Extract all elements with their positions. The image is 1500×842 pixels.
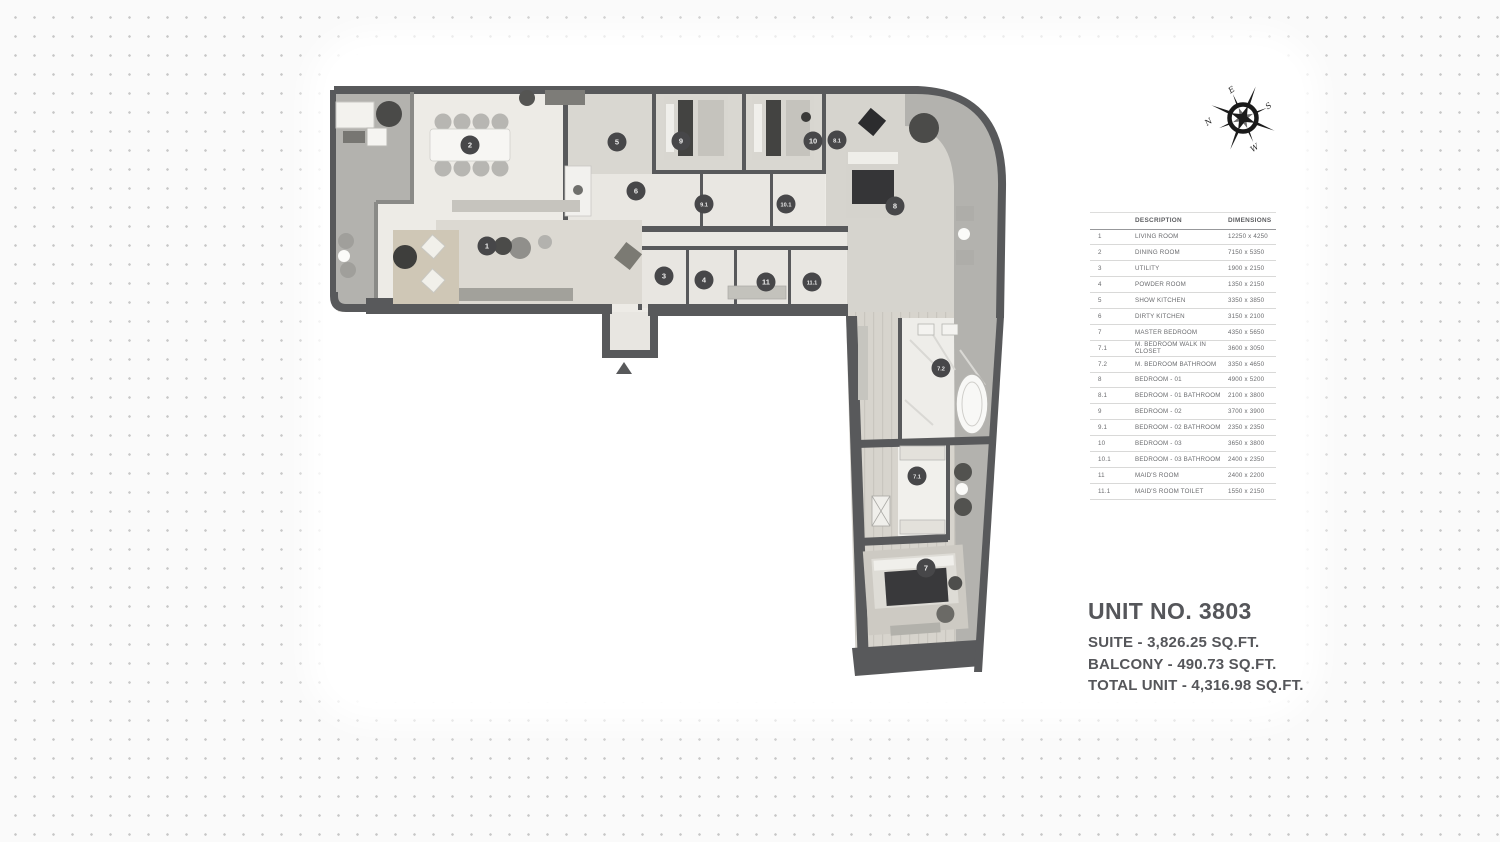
room-marker: 8.1	[828, 131, 847, 150]
room-marker: 4	[695, 271, 714, 290]
page: { "compass": { "north": "N", "east": "E"…	[0, 0, 1500, 842]
schedule-cell-dimensions: 3700 x 3900	[1228, 408, 1276, 415]
schedule-cell-dimensions: 3650 x 3800	[1228, 440, 1276, 447]
room-marker-label: 2	[468, 141, 472, 150]
room-marker: 8	[886, 197, 905, 216]
schedule-cell-dimensions: 2400 x 2200	[1228, 472, 1276, 479]
floor-plan: 12345677.17.288.199.11010.11111.1	[325, 78, 1025, 690]
room-marker-label: 7.1	[913, 475, 921, 481]
schedule-cell-description: LIVING ROOM	[1135, 233, 1228, 240]
schedule-header-dimensions: DIMENSIONS	[1228, 217, 1276, 224]
schedule-cell-description: BEDROOM - 02 BATHROOM	[1135, 424, 1228, 431]
room-marker-label: 7.2	[937, 367, 945, 373]
schedule-header-description: DESCRIPTION	[1135, 217, 1228, 224]
schedule-cell-no: 11.1	[1090, 488, 1135, 495]
schedule-cell-no: 3	[1090, 265, 1135, 272]
schedule-row: 11MAID'S ROOM2400 x 2200	[1090, 468, 1276, 484]
room-marker-label: 9.1	[700, 203, 708, 209]
room-marker: 1	[478, 237, 497, 256]
schedule-row: 1LIVING ROOM12250 x 4250	[1090, 230, 1276, 246]
schedule-cell-description: DIRTY KITCHEN	[1135, 313, 1228, 320]
compass-west-label: W	[1249, 141, 1262, 154]
schedule-cell-description: POWDER ROOM	[1135, 281, 1228, 288]
unit-number-title: UNIT NO. 3803	[1088, 598, 1304, 625]
balcony-area-text: BALCONY - 490.73 SQ.FT.	[1088, 654, 1304, 676]
schedule-cell-dimensions: 1550 x 2150	[1228, 488, 1276, 495]
schedule-row: 3UTILITY1900 x 2150	[1090, 261, 1276, 277]
schedule-cell-no: 5	[1090, 297, 1135, 304]
schedule-cell-dimensions: 3150 x 2100	[1228, 313, 1276, 320]
schedule-cell-dimensions: 2350 x 2350	[1228, 424, 1276, 431]
entrance-arrow	[616, 362, 632, 374]
schedule-row: 7.2M. BEDROOM BATHROOM3350 x 4650	[1090, 357, 1276, 373]
schedule-row: 4POWDER ROOM1350 x 2150	[1090, 277, 1276, 293]
schedule-cell-dimensions: 3600 x 3050	[1228, 345, 1276, 352]
compass-south-label: S	[1264, 100, 1274, 111]
schedule-cell-description: BEDROOM - 03 BATHROOM	[1135, 456, 1228, 463]
schedule-cell-description: MASTER BEDROOM	[1135, 329, 1228, 336]
room-marker: 9.1	[695, 195, 714, 214]
schedule-row: 10.1BEDROOM - 03 BATHROOM2400 x 2350	[1090, 452, 1276, 468]
room-marker-label: 10.1	[781, 203, 792, 209]
schedule-row: 2DINING ROOM7150 x 5350	[1090, 245, 1276, 261]
schedule-row: 6DIRTY KITCHEN3150 x 2100	[1090, 309, 1276, 325]
total-area-text: TOTAL UNIT - 4,316.98 SQ.FT.	[1088, 675, 1304, 697]
schedule-cell-description: SHOW KITCHEN	[1135, 297, 1228, 304]
room-marker-label: 11.1	[807, 281, 818, 287]
room-marker-label: 10	[809, 137, 817, 146]
schedule-cell-description: BEDROOM - 01 BATHROOM	[1135, 392, 1228, 399]
schedule-cell-no: 2	[1090, 249, 1135, 256]
room-marker: 11	[757, 273, 776, 292]
schedule-cell-no: 7.2	[1090, 361, 1135, 368]
schedule-body: 1LIVING ROOM12250 x 42502DINING ROOM7150…	[1090, 230, 1276, 500]
unit-info-block: UNIT NO. 3803 SUITE - 3,826.25 SQ.FT. BA…	[1088, 598, 1304, 697]
schedule-cell-dimensions: 1900 x 2150	[1228, 265, 1276, 272]
schedule-cell-no: 9.1	[1090, 424, 1135, 431]
schedule-cell-description: DINING ROOM	[1135, 249, 1228, 256]
room-marker: 3	[655, 267, 674, 286]
room-marker: 11.1	[803, 273, 822, 292]
schedule-row: 8BEDROOM - 014900 x 5200	[1090, 373, 1276, 389]
schedule-cell-dimensions: 3350 x 3850	[1228, 297, 1276, 304]
room-marker: 7.1	[908, 467, 927, 486]
schedule-row: 10BEDROOM - 033650 x 3800	[1090, 436, 1276, 452]
room-marker-label: 7	[924, 564, 928, 573]
schedule-cell-no: 7.1	[1090, 345, 1135, 352]
schedule-cell-dimensions: 3350 x 4650	[1228, 361, 1276, 368]
schedule-cell-no: 8.1	[1090, 392, 1135, 399]
schedule-row: 7MASTER BEDROOM4350 x 5650	[1090, 325, 1276, 341]
room-marker: 7	[917, 559, 936, 578]
room-marker: 6	[627, 182, 646, 201]
schedule-row: 7.1M. BEDROOM WALK IN CLOSET3600 x 3050	[1090, 341, 1276, 357]
room-marker-label: 11	[762, 278, 770, 287]
room-marker-label: 9	[679, 137, 683, 146]
schedule-cell-no: 10	[1090, 440, 1135, 447]
schedule-cell-description: M. BEDROOM BATHROOM	[1135, 361, 1228, 368]
schedule-header-row: DESCRIPTION DIMENSIONS	[1090, 212, 1276, 230]
schedule-cell-description: BEDROOM - 02	[1135, 408, 1228, 415]
schedule-cell-dimensions: 2400 x 2350	[1228, 456, 1276, 463]
schedule-cell-dimensions: 1350 x 2150	[1228, 281, 1276, 288]
room-marker: 10.1	[777, 195, 796, 214]
room-marker-label: 1	[485, 242, 489, 251]
room-marker-label: 5	[615, 138, 619, 147]
schedule-cell-no: 4	[1090, 281, 1135, 288]
schedule-cell-no: 1	[1090, 233, 1135, 240]
schedule-cell-no: 7	[1090, 329, 1135, 336]
schedule-row: 9.1BEDROOM - 02 BATHROOM2350 x 2350	[1090, 420, 1276, 436]
room-marker-label: 6	[634, 187, 638, 196]
schedule-cell-dimensions: 12250 x 4250	[1228, 233, 1276, 240]
compass-north-label: N	[1202, 116, 1215, 129]
schedule-cell-description: BEDROOM - 03	[1135, 440, 1228, 447]
schedule-cell-description: MAID'S ROOM	[1135, 472, 1228, 479]
schedule-cell-dimensions: 2100 x 3800	[1228, 392, 1276, 399]
schedule-row: 5SHOW KITCHEN3350 x 3850	[1090, 293, 1276, 309]
room-marker-label: 8	[893, 202, 897, 211]
schedule-row: 9BEDROOM - 023700 x 3900	[1090, 404, 1276, 420]
room-marker: 9	[672, 132, 691, 151]
room-marker: 5	[608, 133, 627, 152]
schedule-cell-dimensions: 7150 x 5350	[1228, 249, 1276, 256]
room-marker-label: 3	[662, 272, 666, 281]
schedule-row: 11.1MAID'S ROOM TOILET1550 x 2150	[1090, 484, 1276, 500]
room-marker: 10	[804, 132, 823, 151]
schedule-cell-no: 6	[1090, 313, 1135, 320]
schedule-cell-description: BEDROOM - 01	[1135, 376, 1228, 383]
schedule-cell-no: 8	[1090, 376, 1135, 383]
room-marker-label: 8.1	[833, 139, 841, 145]
room-schedule-table: DESCRIPTION DIMENSIONS 1LIVING ROOM12250…	[1090, 212, 1276, 500]
suite-area-text: SUITE - 3,826.25 SQ.FT.	[1088, 632, 1304, 654]
schedule-cell-description: MAID'S ROOM TOILET	[1135, 488, 1228, 495]
compass-east-label: E	[1226, 85, 1237, 96]
compass-rose-icon: E S W N	[1200, 80, 1286, 156]
schedule-cell-no: 10.1	[1090, 456, 1135, 463]
room-marker: 2	[461, 136, 480, 155]
room-marker: 7.2	[932, 359, 951, 378]
schedule-cell-no: 11	[1090, 472, 1135, 479]
schedule-cell-no: 9	[1090, 408, 1135, 415]
schedule-cell-description: M. BEDROOM WALK IN CLOSET	[1135, 341, 1228, 355]
schedule-row: 8.1BEDROOM - 01 BATHROOM2100 x 3800	[1090, 388, 1276, 404]
schedule-cell-dimensions: 4900 x 5200	[1228, 376, 1276, 383]
schedule-cell-description: UTILITY	[1135, 265, 1228, 272]
schedule-cell-dimensions: 4350 x 5650	[1228, 329, 1276, 336]
